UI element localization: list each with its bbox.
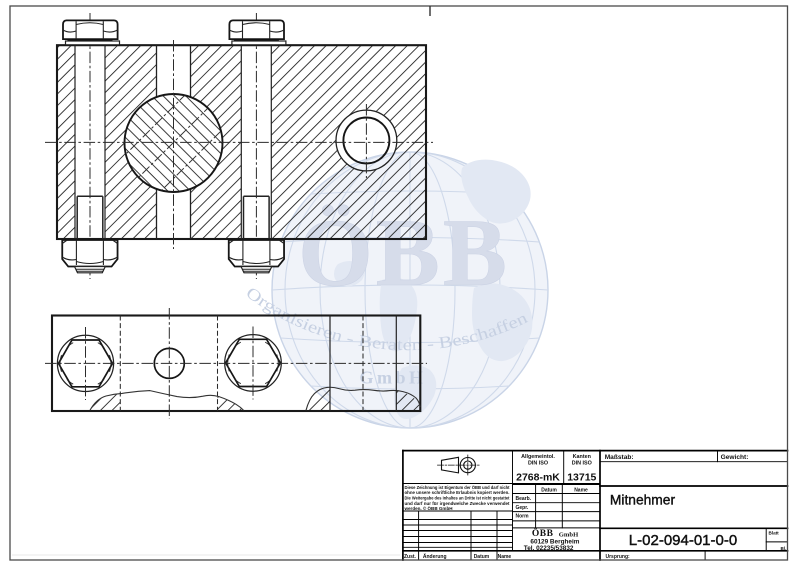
svg-text:Mitnehmer: Mitnehmer bbox=[610, 493, 676, 508]
svg-text:Allgemeintol.: Allgemeintol. bbox=[521, 454, 555, 460]
svg-text:GmbH: GmbH bbox=[559, 531, 579, 538]
svg-text:Name: Name bbox=[574, 488, 588, 494]
svg-text:Zust.: Zust. bbox=[404, 554, 417, 560]
svg-text:Kanten: Kanten bbox=[573, 454, 591, 460]
svg-text:GmbH: GmbH bbox=[359, 368, 426, 388]
svg-text:Bl.: Bl. bbox=[781, 546, 787, 551]
svg-text:Maßstab:: Maßstab: bbox=[605, 454, 634, 461]
svg-text:Datum: Datum bbox=[541, 488, 557, 494]
svg-text:und darf nur für irgendwelche: und darf nur für irgendwelche Zwecke ver… bbox=[405, 501, 511, 506]
svg-text:DIN ISO: DIN ISO bbox=[528, 461, 548, 467]
svg-text:Norm: Norm bbox=[516, 514, 530, 520]
svg-text:Diese Zeichnung ist Eigentum d: Diese Zeichnung ist Eigentum der ÖBB und… bbox=[405, 485, 510, 490]
svg-text:2768-mK: 2768-mK bbox=[516, 472, 560, 484]
svg-text:Die Weitergabe des Inhaltes an: Die Weitergabe des Inhaltes an Dritte is… bbox=[405, 496, 510, 501]
svg-text:Tel. 02235/53832: Tel. 02235/53832 bbox=[524, 545, 574, 552]
svg-text:Bearb.: Bearb. bbox=[516, 496, 532, 502]
svg-text:13715: 13715 bbox=[567, 472, 596, 484]
svg-text:Änderung: Änderung bbox=[423, 553, 447, 560]
svg-text:ohne unsere schriftliche Erlau: ohne unsere schriftliche Erlaubnis kopie… bbox=[405, 490, 510, 495]
svg-text:Ursprung:: Ursprung: bbox=[606, 554, 631, 560]
svg-text:Gepr.: Gepr. bbox=[516, 505, 529, 511]
svg-text:DIN ISO: DIN ISO bbox=[572, 461, 592, 467]
svg-text:Gewicht:: Gewicht: bbox=[721, 454, 749, 461]
svg-text:werden. © ÖBB GmbH: werden. © ÖBB GmbH bbox=[403, 506, 452, 511]
svg-text:Blatt: Blatt bbox=[769, 531, 780, 536]
svg-text:Name: Name bbox=[498, 554, 512, 560]
svg-text:L-02-094-01-0-0: L-02-094-01-0-0 bbox=[629, 532, 737, 549]
svg-text:Datum: Datum bbox=[474, 554, 490, 560]
